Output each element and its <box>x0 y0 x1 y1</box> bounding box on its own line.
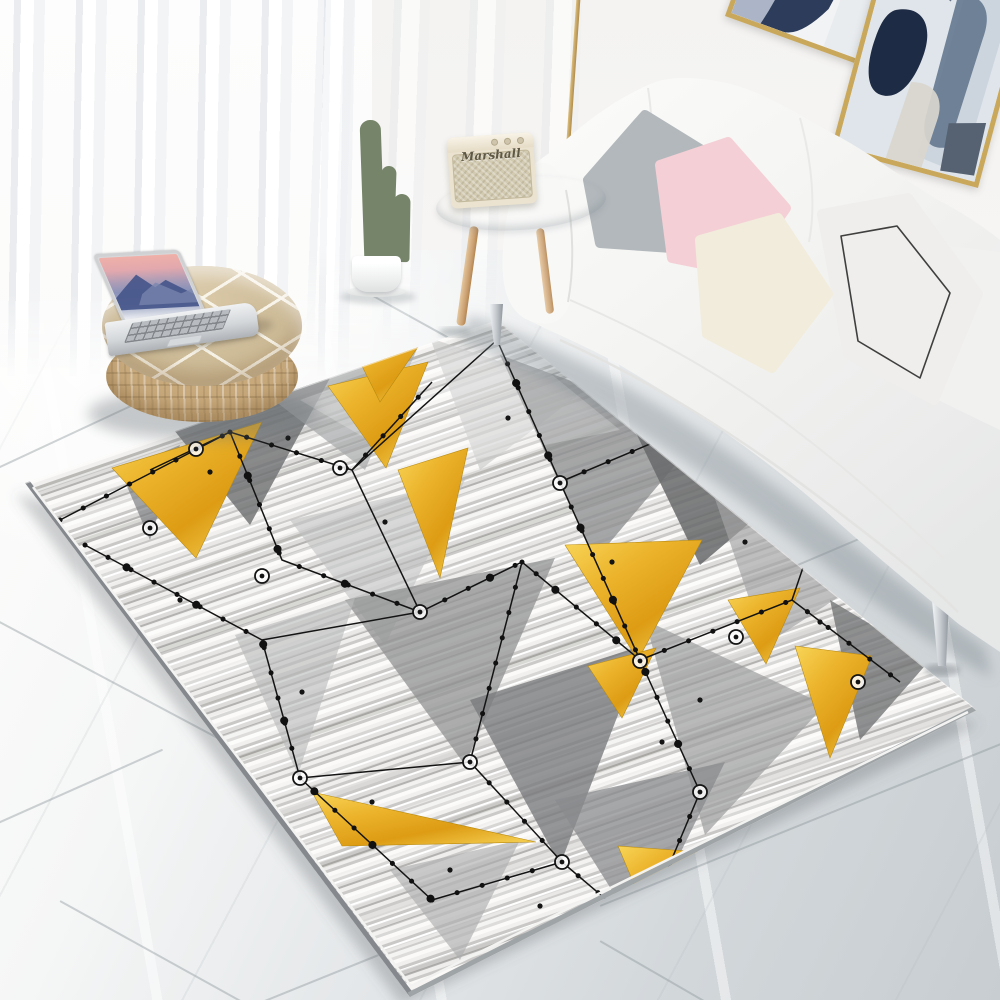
grout-line <box>0 749 163 832</box>
grout-line <box>60 900 306 1000</box>
grout-line <box>240 898 519 1000</box>
speaker-knob <box>504 138 511 145</box>
grout-line <box>0 600 340 804</box>
grout-line <box>760 463 1000 582</box>
speaker-knob <box>491 139 498 146</box>
laptop <box>100 248 275 363</box>
living-room-photo: Marshall <box>0 0 1000 1000</box>
cactus-pot <box>352 256 401 292</box>
speaker: Marshall <box>447 132 538 209</box>
grout-line <box>600 733 1000 907</box>
grout-line <box>600 940 861 1000</box>
speaker-knob <box>517 137 524 144</box>
cactus-stem <box>392 194 410 262</box>
